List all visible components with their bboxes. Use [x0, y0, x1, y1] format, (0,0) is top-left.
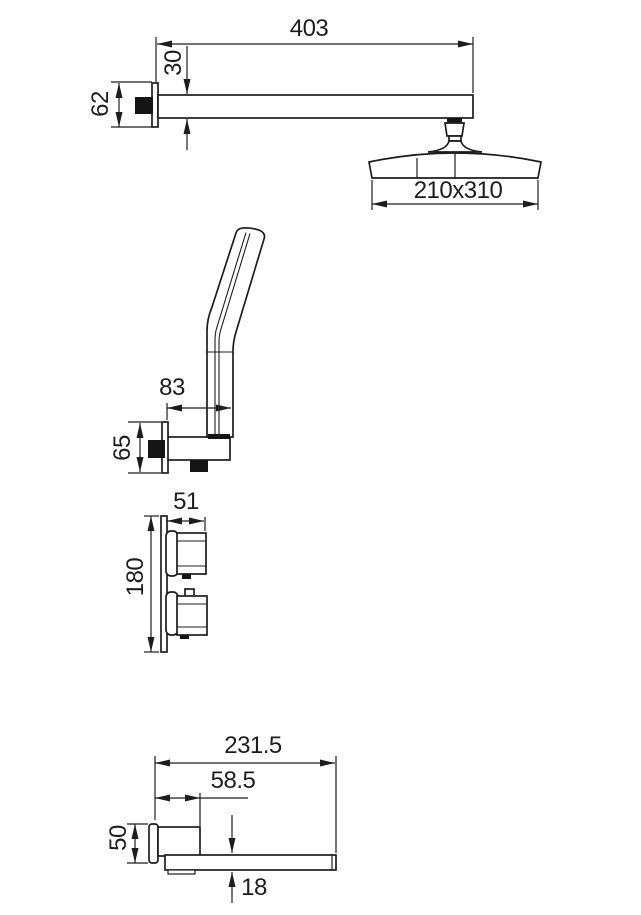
technical-drawing-canvas: 403 30 62 210x310 83 65 51 180 231.5 58.…: [0, 0, 641, 915]
shower-arm-drawing: [135, 83, 473, 127]
dim-label-plate-height: 180: [124, 558, 148, 597]
dim-label-holder-reach: 83: [159, 376, 185, 400]
hand-shower-drawing: [148, 228, 265, 473]
dim-label-spout-blade-thickness: 18: [241, 876, 267, 900]
drawing-linework: [0, 0, 641, 915]
dim-label-spout-flange-height: 50: [107, 825, 131, 851]
mixer-valve-drawing: [161, 516, 207, 652]
dim-label-spout-block-length: 58.5: [211, 769, 256, 793]
dim-label-spout-total-length: 231.5: [224, 734, 282, 758]
dim-label-arm-length: 403: [290, 17, 329, 41]
dim-label-handle-depth: 51: [173, 490, 199, 514]
dim-label-holder-height: 65: [111, 435, 135, 461]
dim-label-arm-height: 30: [162, 50, 186, 76]
shower-head-drawing: [369, 118, 541, 178]
dim-label-arm-flange-height: 62: [89, 91, 113, 117]
spout-drawing: [149, 824, 336, 874]
dim-label-head-size: 210x310: [414, 179, 503, 203]
